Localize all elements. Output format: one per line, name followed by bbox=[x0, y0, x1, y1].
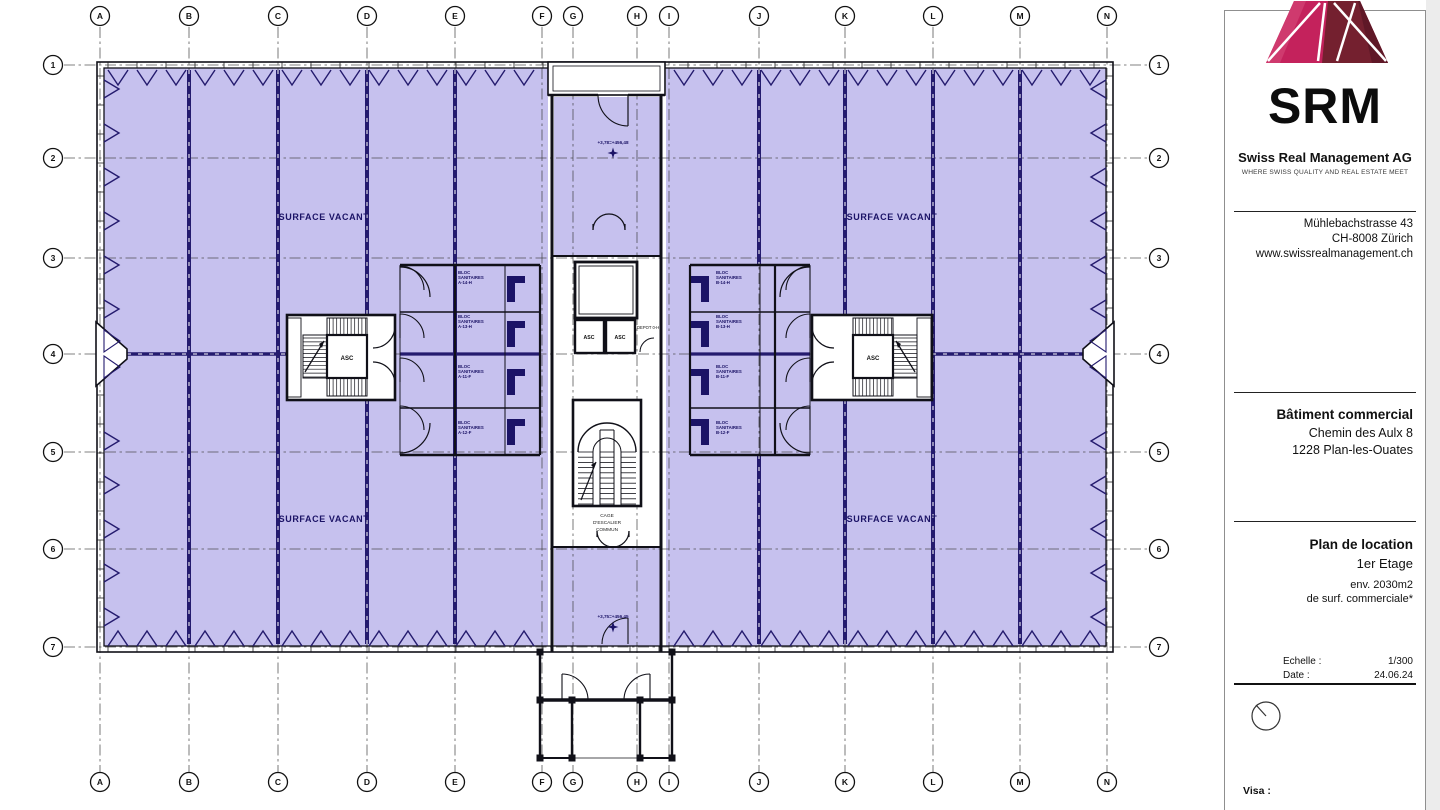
svg-text:7: 7 bbox=[51, 642, 56, 652]
date-value: 24.06.24 bbox=[1374, 670, 1413, 681]
svg-text:B: B bbox=[186, 11, 192, 21]
asc-label: ASC bbox=[584, 335, 595, 341]
grid-bubble: 6 bbox=[1150, 540, 1169, 559]
svg-text:G: G bbox=[570, 11, 577, 21]
svg-text:2: 2 bbox=[51, 153, 56, 163]
grid-bubble: 5 bbox=[1150, 443, 1169, 462]
svg-text:M: M bbox=[1016, 777, 1023, 787]
grid-bubble: C bbox=[269, 773, 288, 792]
asc-label: ASC bbox=[341, 356, 354, 362]
page-margin-strip bbox=[1426, 0, 1440, 810]
sanitaires-label: B-11-F bbox=[716, 374, 730, 379]
svg-text:H: H bbox=[634, 777, 640, 787]
grid-bubble: K bbox=[836, 773, 855, 792]
svg-text:7: 7 bbox=[1157, 642, 1162, 652]
grid-bubble: G bbox=[564, 7, 583, 26]
date-label: Date : bbox=[1283, 670, 1310, 681]
plan-title: Plan de location bbox=[1307, 537, 1413, 552]
grid-bubble: G bbox=[564, 773, 583, 792]
plan-floor: 1er Etage bbox=[1307, 556, 1413, 571]
grid-bubble: N bbox=[1098, 773, 1117, 792]
plan-area: env. 2030m2 bbox=[1307, 578, 1413, 592]
svg-text:F: F bbox=[539, 777, 544, 787]
grid-bubble: 7 bbox=[1150, 638, 1169, 657]
sanitaires-label: B-12-F bbox=[716, 430, 730, 435]
svg-text:K: K bbox=[842, 777, 849, 787]
level-annotation-bottom: +3,75=+456,45 bbox=[597, 614, 628, 619]
scale-label: Echelle : bbox=[1283, 656, 1321, 667]
grid-bubble: I bbox=[660, 7, 679, 26]
building-address-line: Chemin des Aulx 8 bbox=[1276, 425, 1413, 442]
company-name: Swiss Real Management AG bbox=[1225, 150, 1425, 165]
svg-text:1: 1 bbox=[51, 60, 56, 70]
grid-bubble: F bbox=[533, 773, 552, 792]
stair-label-line: CAGE bbox=[600, 513, 614, 519]
svg-text:H: H bbox=[634, 11, 640, 21]
surface-vacant-label: SURFACE VACANT bbox=[847, 212, 938, 222]
grid-bubble: K bbox=[836, 7, 855, 26]
svg-text:I: I bbox=[668, 777, 670, 787]
grid-bubble: 2 bbox=[1150, 149, 1169, 168]
grid-bubble: B bbox=[180, 7, 199, 26]
grid-bubble: L bbox=[924, 773, 943, 792]
floor-plan: ASC ASC BLOCSANITAIRESA-14-HBLOCSANITAIR… bbox=[0, 0, 1222, 810]
north-compass-icon bbox=[1249, 699, 1283, 733]
grid-bubble: J bbox=[750, 773, 769, 792]
svg-text:4: 4 bbox=[51, 349, 56, 359]
stair-label-line: COMMUN bbox=[596, 527, 619, 533]
asc-label: ASC bbox=[615, 335, 626, 341]
asc-label: ASC bbox=[867, 356, 880, 362]
grid-bubble: A bbox=[91, 773, 110, 792]
surface-vacant-label: SURFACE VACANT bbox=[279, 514, 370, 524]
svg-text:M: M bbox=[1016, 11, 1023, 21]
scale-row: Echelle : 1/300 bbox=[1283, 656, 1413, 667]
svg-text:C: C bbox=[275, 777, 281, 787]
grid-bubble: 1 bbox=[44, 56, 63, 75]
svg-text:4: 4 bbox=[1157, 349, 1162, 359]
company-tagline: WHERE SWISS QUALITY AND REAL ESTATE MEET bbox=[1225, 169, 1425, 176]
grid-bubble: I bbox=[660, 773, 679, 792]
sanitaires-label: A-11-F bbox=[458, 374, 472, 379]
grid-bubble: N bbox=[1098, 7, 1117, 26]
plan-area-note: de surf. commerciale* bbox=[1307, 592, 1413, 606]
address-line: CH-8008 Zürich bbox=[1256, 232, 1413, 247]
svg-text:3: 3 bbox=[51, 253, 56, 263]
grid-bubble: D bbox=[358, 773, 377, 792]
grid-bubble: E bbox=[446, 773, 465, 792]
svg-text:I: I bbox=[668, 11, 670, 21]
svg-text:E: E bbox=[452, 777, 458, 787]
page: ASC ASC BLOCSANITAIRESA-14-HBLOCSANITAIR… bbox=[0, 0, 1440, 810]
svg-text:A: A bbox=[97, 11, 103, 21]
address-website: www.swissrealmanagement.ch bbox=[1256, 247, 1413, 262]
srm-logo-icon bbox=[1262, 1, 1392, 63]
sanitaires-label: A-13-H bbox=[458, 324, 472, 329]
sanitaires-label: B-14-H bbox=[716, 280, 730, 285]
svg-text:N: N bbox=[1104, 777, 1110, 787]
grid-bubble: 3 bbox=[44, 249, 63, 268]
visa-label: Visa : bbox=[1243, 785, 1271, 797]
stair-label-line: D'ESCALIER bbox=[593, 520, 622, 526]
grid-bubble: C bbox=[269, 7, 288, 26]
svg-text:D: D bbox=[364, 777, 370, 787]
svg-text:2: 2 bbox=[1157, 153, 1162, 163]
svg-text:L: L bbox=[930, 11, 935, 21]
svg-text:C: C bbox=[275, 11, 281, 21]
depot-label: DEPOT 0-H bbox=[637, 325, 659, 330]
grid-bubble: J bbox=[750, 7, 769, 26]
address-line: Mühlebachstrasse 43 bbox=[1256, 217, 1413, 232]
grid-bubble: 2 bbox=[44, 149, 63, 168]
divider bbox=[1234, 392, 1416, 393]
building-address-line: 1228 Plan-les-Ouates bbox=[1276, 442, 1413, 459]
svg-text:E: E bbox=[452, 11, 458, 21]
grid-bubble: D bbox=[358, 7, 377, 26]
date-row: Date : 24.06.24 bbox=[1283, 670, 1413, 681]
sanitaires-label: A-14-H bbox=[458, 280, 472, 285]
grid-bubble: F bbox=[533, 7, 552, 26]
svg-text:L: L bbox=[930, 777, 935, 787]
scale-value: 1/300 bbox=[1388, 656, 1413, 667]
grid-bubble: A bbox=[91, 7, 110, 26]
logo-wordmark: SRM bbox=[1225, 81, 1425, 131]
title-block: SRM Swiss Real Management AG WHERE SWISS… bbox=[1224, 10, 1426, 810]
surface-fills bbox=[104, 62, 1106, 652]
building-title: Bâtiment commercial bbox=[1276, 407, 1413, 422]
svg-text:B: B bbox=[186, 777, 192, 787]
grid-bubble: 4 bbox=[44, 345, 63, 364]
grid-bubble: E bbox=[446, 7, 465, 26]
sanitaires-label: B-13-H bbox=[716, 324, 730, 329]
svg-text:6: 6 bbox=[1157, 544, 1162, 554]
divider bbox=[1234, 211, 1416, 212]
svg-text:5: 5 bbox=[1157, 447, 1162, 457]
grid-bubble: H bbox=[628, 773, 647, 792]
grid-bubble: 5 bbox=[44, 443, 63, 462]
svg-text:D: D bbox=[364, 11, 370, 21]
grid-bubble: M bbox=[1011, 773, 1030, 792]
svg-text:5: 5 bbox=[51, 447, 56, 457]
svg-text:A: A bbox=[97, 777, 103, 787]
grid-bubble: L bbox=[924, 7, 943, 26]
svg-text:J: J bbox=[757, 11, 762, 21]
grid-bubble: H bbox=[628, 7, 647, 26]
building-info: Bâtiment commercial Chemin des Aulx 8 12… bbox=[1276, 407, 1413, 459]
grid-bubble: 7 bbox=[44, 638, 63, 657]
level-annotation-top: +3,78=+456,48 bbox=[597, 140, 628, 145]
svg-text:N: N bbox=[1104, 11, 1110, 21]
svg-text:K: K bbox=[842, 11, 849, 21]
entrance-vestibule bbox=[537, 649, 676, 762]
svg-text:J: J bbox=[757, 777, 762, 787]
svg-text:F: F bbox=[539, 11, 544, 21]
company-address: Mühlebachstrasse 43 CH-8008 Zürich www.s… bbox=[1256, 217, 1413, 262]
divider-thick bbox=[1234, 683, 1416, 685]
divider bbox=[1234, 521, 1416, 522]
floor-plan-drawing: ASC ASC BLOCSANITAIRESA-14-HBLOCSANITAIR… bbox=[0, 0, 1222, 810]
svg-text:3: 3 bbox=[1157, 253, 1162, 263]
surface-vacant-label: SURFACE VACANT bbox=[847, 514, 938, 524]
grid-bubble: M bbox=[1011, 7, 1030, 26]
surface-vacant-label: SURFACE VACANT bbox=[279, 212, 370, 222]
plan-info: Plan de location 1er Etage env. 2030m2 d… bbox=[1307, 537, 1413, 606]
svg-text:6: 6 bbox=[51, 544, 56, 554]
svg-text:1: 1 bbox=[1157, 60, 1162, 70]
grid-bubble: 1 bbox=[1150, 56, 1169, 75]
grid-bubble: 3 bbox=[1150, 249, 1169, 268]
sanitaires-label: A-12-F bbox=[458, 430, 472, 435]
grid-bubble: 4 bbox=[1150, 345, 1169, 364]
grid-bubble: B bbox=[180, 773, 199, 792]
grid-bubble: 6 bbox=[44, 540, 63, 559]
svg-text:G: G bbox=[570, 777, 577, 787]
